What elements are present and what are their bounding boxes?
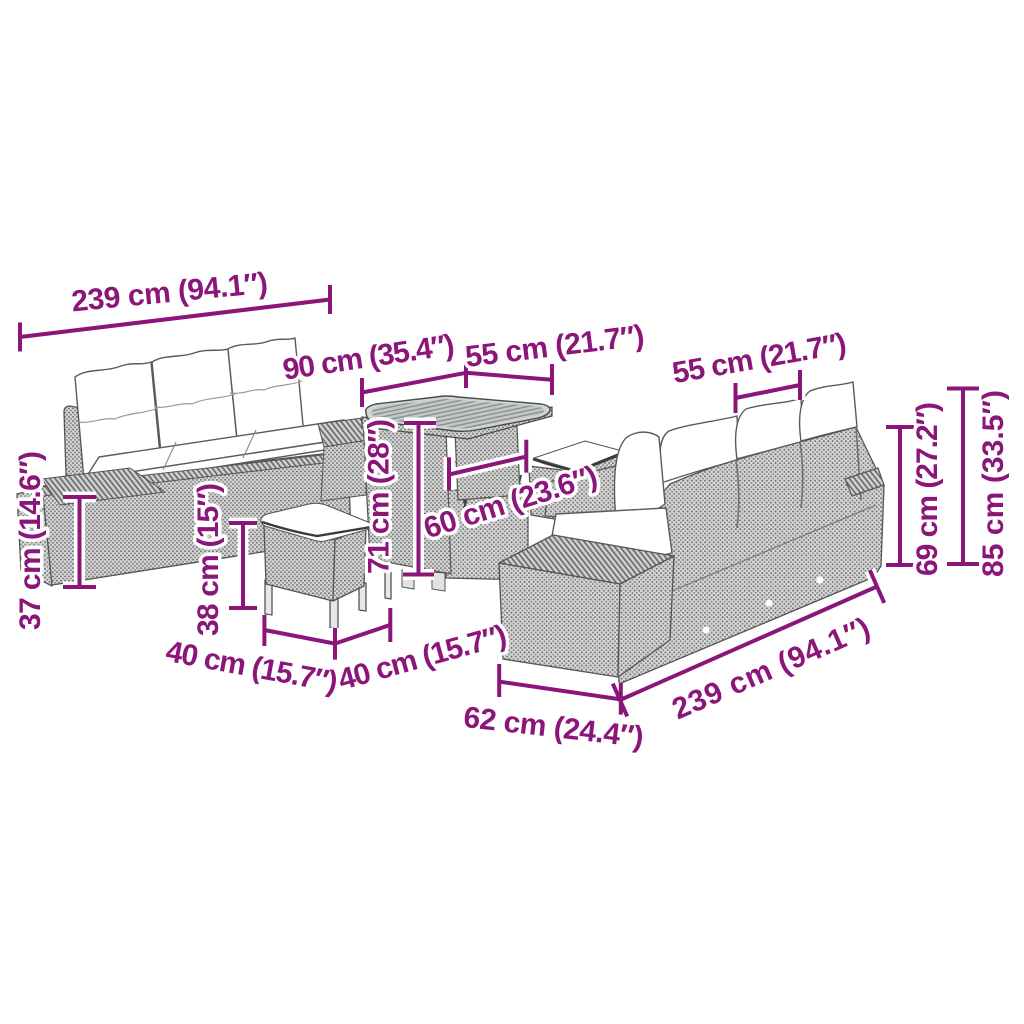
svg-text:71 cm (28″): 71 cm (28″) xyxy=(363,419,396,574)
svg-text:37 cm (14.6″): 37 cm (14.6″) xyxy=(14,451,47,630)
svg-text:69 cm (27.2″): 69 cm (27.2″) xyxy=(911,402,944,576)
svg-text:38 cm (15″): 38 cm (15″) xyxy=(192,483,225,636)
svg-text:85 cm (33.5″): 85 cm (33.5″) xyxy=(977,390,1010,577)
